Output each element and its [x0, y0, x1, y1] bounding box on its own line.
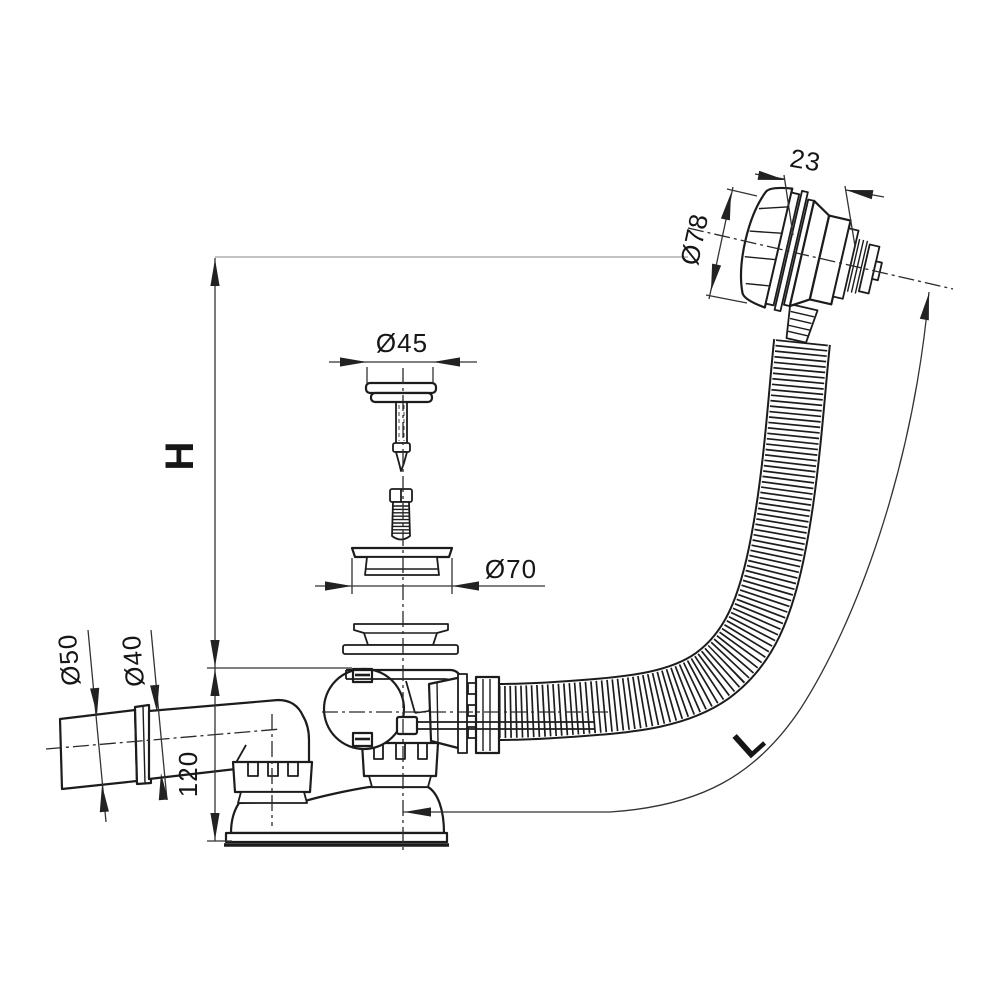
drain-body — [324, 669, 499, 753]
gasket — [343, 624, 458, 654]
dim-label-d45: Ø45 — [376, 328, 428, 358]
dim-label-d40: Ø40 — [116, 633, 150, 688]
waste-plug — [366, 383, 436, 471]
overflow-head — [726, 181, 894, 355]
corrugated-hose — [498, 342, 802, 712]
dim-label-d50: Ø50 — [52, 632, 86, 687]
dim-label-120: 120 — [173, 751, 203, 797]
dim-label-L: L — [726, 718, 774, 767]
base-flange-plate — [226, 833, 447, 842]
dimension-H: H — [158, 257, 688, 668]
drawing-canvas: H 120 Ø45 Ø70 Ø50 Ø40 23 — [0, 0, 1000, 1000]
flange — [352, 548, 452, 575]
bowl-tab-bottom — [353, 733, 372, 746]
technical-drawing-bath-waste-overflow: H 120 Ø45 Ø70 Ø50 Ø40 23 — [0, 0, 1000, 1000]
plug-stem — [393, 402, 410, 471]
hose-thread-tail — [783, 304, 818, 343]
bottom-port-nut — [362, 743, 438, 787]
outlet-socket — [60, 710, 137, 789]
dim-label-d70: Ø70 — [485, 554, 537, 584]
dim-label-H: H — [158, 442, 202, 471]
linkage-block — [397, 717, 417, 734]
dim-label-d78: Ø78 — [674, 211, 714, 268]
dim-label-23: 23 — [788, 143, 824, 178]
screw — [390, 489, 412, 540]
plug-cap — [366, 383, 436, 393]
hose-outlet-cone — [429, 674, 476, 753]
hose-union-nut — [476, 677, 499, 753]
